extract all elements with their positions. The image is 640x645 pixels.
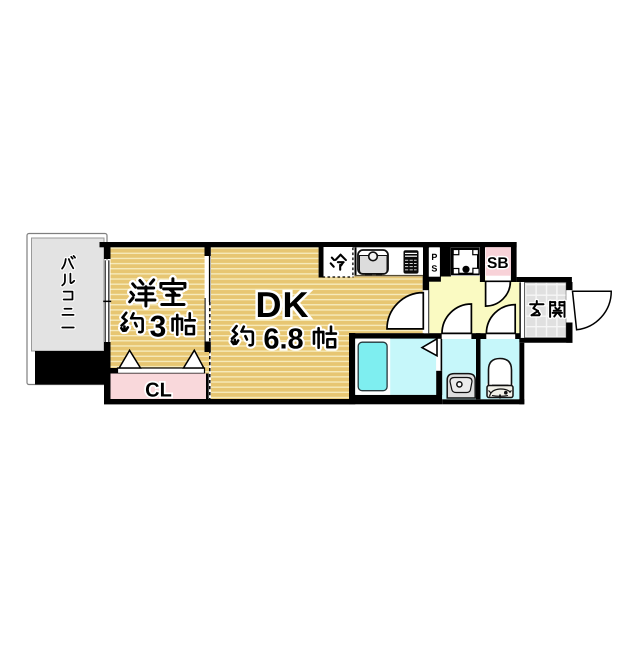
svg-text:S: S — [431, 264, 437, 274]
svg-text:CL: CL — [145, 380, 172, 402]
svg-text:P: P — [431, 252, 437, 262]
svg-text:SB: SB — [487, 255, 509, 272]
svg-text:3: 3 — [150, 310, 167, 343]
svg-text:6.8: 6.8 — [263, 324, 303, 356]
svg-text:DK: DK — [256, 284, 310, 325]
